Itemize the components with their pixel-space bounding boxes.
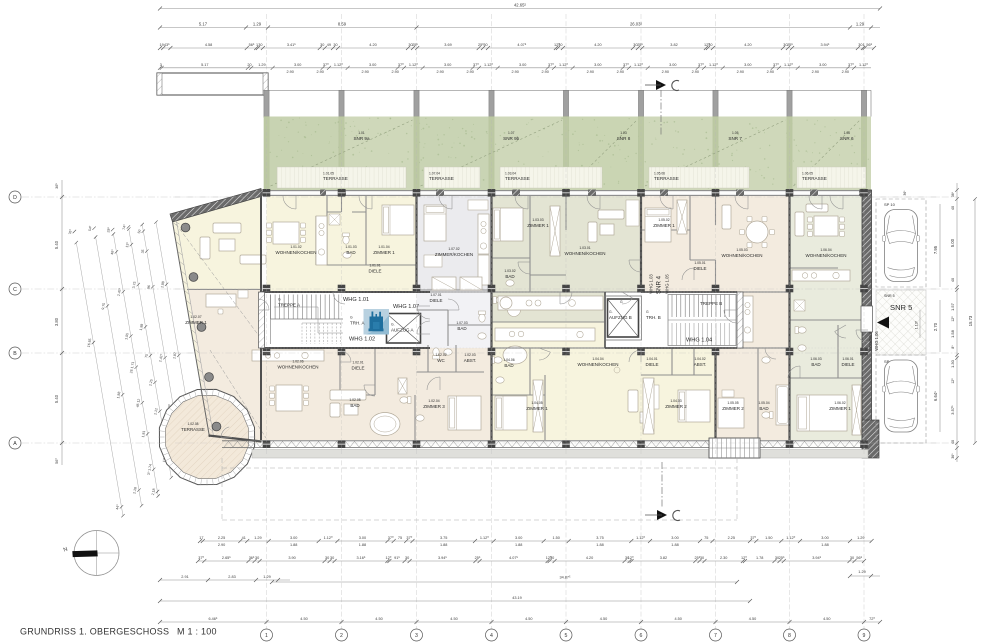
svg-text:35: 35	[141, 249, 146, 254]
svg-text:1.02.06: 1.02.06	[292, 360, 303, 364]
svg-text:75: 75	[144, 354, 149, 359]
svg-text:1.04.04: 1.04.04	[592, 357, 603, 361]
svg-text:36⁵: 36⁵	[55, 183, 59, 189]
svg-text:2.65⁵: 2.65⁵	[222, 556, 231, 560]
svg-text:1.88: 1.88	[596, 543, 603, 547]
svg-text:1.02.07: 1.02.07	[190, 315, 201, 319]
svg-text:30: 30	[483, 43, 487, 47]
svg-text:37⁰: 37⁰	[698, 63, 704, 67]
svg-text:ZIMMER 3: ZIMMER 3	[423, 404, 445, 409]
svg-text:4.50: 4.50	[450, 617, 457, 621]
svg-text:30: 30	[850, 556, 854, 560]
svg-text:SP 10: SP 10	[884, 202, 896, 207]
svg-text:1.12⁰: 1.12⁰	[334, 63, 343, 67]
svg-text:1.88: 1.88	[359, 543, 366, 547]
svg-text:SNR 9a: SNR 9a	[353, 136, 370, 141]
svg-text:ZIMMER 2: ZIMMER 2	[665, 404, 687, 409]
svg-text:3.00: 3.00	[444, 63, 451, 67]
svg-text:25⁵: 25⁵	[475, 556, 481, 560]
svg-text:12⁰: 12⁰	[628, 556, 634, 560]
svg-text:1.05.04: 1.05.04	[758, 401, 769, 405]
svg-text:WHG 1.02: WHG 1.02	[349, 337, 375, 343]
svg-text:40: 40	[951, 440, 955, 444]
svg-text:25⁵: 25⁵	[412, 43, 418, 47]
svg-text:56⁵: 56⁵	[866, 43, 872, 47]
svg-text:1.03: 1.03	[620, 131, 627, 135]
svg-text:1.01.01: 1.01.01	[369, 264, 380, 268]
svg-text:WHG 1.05: WHG 1.05	[665, 274, 670, 294]
svg-text:37⁰: 37⁰	[623, 63, 629, 67]
svg-text:1.88: 1.88	[515, 543, 522, 547]
svg-text:3.82: 3.82	[670, 43, 677, 47]
svg-text:WOHNEN/KOCHEN: WOHNEN/KOCHEN	[805, 253, 846, 258]
svg-text:5.40: 5.40	[54, 394, 59, 403]
svg-text:6.64⁵: 6.64⁵	[933, 391, 938, 401]
svg-text:1.02.01: 1.02.01	[352, 361, 363, 365]
svg-text:5.00: 5.00	[950, 238, 955, 247]
svg-text:1.12⁰: 1.12⁰	[634, 63, 643, 67]
svg-text:WOHNEN/KOCHEN: WOHNEN/KOCHEN	[275, 250, 316, 255]
svg-text:5.17: 5.17	[199, 22, 208, 27]
svg-text:DIELE: DIELE	[368, 269, 381, 274]
svg-text:50: 50	[137, 229, 142, 234]
svg-text:M 1 : 100: M 1 : 100	[177, 627, 217, 637]
svg-text:4.58: 4.58	[205, 43, 212, 47]
svg-text:ZIMMER 1: ZIMMER 1	[653, 223, 675, 228]
svg-text:30: 30	[255, 556, 259, 560]
svg-text:75: 75	[704, 536, 708, 540]
svg-text:1.29: 1.29	[857, 536, 864, 540]
svg-text:2.90: 2.90	[542, 70, 549, 74]
svg-text:1.13⁰: 1.13⁰	[915, 320, 919, 329]
svg-text:2.83: 2.83	[228, 575, 235, 579]
svg-text:30: 30	[258, 43, 262, 47]
svg-text:B: B	[13, 351, 17, 357]
svg-text:37⁰: 37⁰	[773, 63, 779, 67]
svg-text:37⁰: 37⁰	[323, 63, 329, 67]
svg-text:72⁰: 72⁰	[869, 617, 875, 621]
svg-text:1.07.03: 1.07.03	[456, 321, 467, 325]
svg-text:3.80: 3.80	[54, 317, 59, 326]
svg-text:36⁵: 36⁵	[951, 453, 955, 459]
svg-text:12⁰: 12⁰	[951, 378, 955, 384]
svg-text:1.03.01: 1.03.01	[579, 246, 590, 250]
svg-text:3.00: 3.00	[819, 63, 826, 67]
svg-text:3.00: 3.00	[369, 63, 376, 67]
svg-text:37⁰: 37⁰	[388, 536, 394, 540]
svg-text:1.88: 1.88	[440, 543, 447, 547]
svg-text:SNR 9b: SNR 9b	[503, 136, 520, 141]
svg-text:DIELE: DIELE	[645, 362, 658, 367]
svg-text:1.58: 1.58	[950, 329, 955, 338]
svg-text:BAD: BAD	[457, 326, 467, 331]
svg-text:3.57⁵: 3.57⁵	[950, 405, 955, 415]
svg-text:WOHNEN/KOCHEN: WOHNEN/KOCHEN	[564, 251, 605, 256]
svg-text:56⁵: 56⁵	[856, 556, 862, 560]
svg-text:30: 30	[325, 556, 329, 560]
svg-text:2.25: 2.25	[728, 536, 735, 540]
svg-text:49: 49	[327, 43, 331, 47]
svg-text:4.20: 4.20	[586, 556, 593, 560]
svg-text:1.29: 1.29	[858, 570, 865, 574]
svg-text:4.50: 4.50	[675, 617, 682, 621]
svg-text:37⁰: 37⁰	[848, 63, 854, 67]
svg-text:17: 17	[199, 536, 203, 540]
svg-text:ZIMMER 1: ZIMMER 1	[829, 406, 851, 411]
svg-text:SNR 6: SNR 6	[840, 136, 854, 141]
svg-text:BAD: BAD	[346, 250, 356, 255]
svg-text:ABST.: ABST.	[694, 362, 707, 367]
svg-text:3.94⁵: 3.94⁵	[438, 556, 447, 560]
svg-text:3.94⁵: 3.94⁵	[821, 43, 830, 47]
svg-text:C: C	[13, 287, 17, 293]
svg-text:TREPPE B: TREPPE B	[700, 301, 722, 306]
svg-text:3.75: 3.75	[596, 536, 603, 540]
svg-text:20: 20	[247, 63, 251, 67]
svg-text:1.29: 1.29	[856, 22, 865, 27]
svg-text:6: 6	[640, 633, 643, 639]
svg-text:1.02.02: 1.02.02	[435, 353, 446, 357]
svg-text:2.91: 2.91	[181, 575, 188, 579]
svg-text:1.07.01: 1.07.01	[430, 293, 441, 297]
svg-text:G: G	[620, 300, 623, 304]
svg-text:TERRASSE: TERRASSE	[181, 427, 205, 432]
svg-text:1.01.04: 1.01.04	[378, 245, 389, 249]
svg-text:40: 40	[951, 278, 955, 282]
svg-text:4.50: 4.50	[375, 617, 382, 621]
svg-text:1.78: 1.78	[756, 556, 763, 560]
svg-text:1.02.05: 1.02.05	[349, 398, 360, 402]
svg-text:1.12⁰: 1.12⁰	[709, 63, 718, 67]
svg-text:1.06.04: 1.06.04	[820, 248, 831, 252]
svg-text:ZIMMER 1: ZIMMER 1	[526, 406, 548, 411]
svg-text:1.29: 1.29	[253, 22, 262, 27]
svg-text:WOHNEN/KOCHEN: WOHNEN/KOCHEN	[277, 365, 318, 370]
svg-text:2.90: 2.90	[812, 70, 819, 74]
svg-text:1.05.05: 1.05.05	[727, 401, 738, 405]
svg-text:1.57: 1.57	[950, 302, 955, 311]
svg-text:8: 8	[788, 633, 791, 639]
svg-text:SNR 8: SNR 8	[617, 136, 631, 141]
svg-text:4.50: 4.50	[823, 617, 830, 621]
svg-text:ABST.: ABST.	[464, 358, 477, 363]
svg-text:25⁵: 25⁵	[779, 556, 785, 560]
svg-text:3.82: 3.82	[660, 556, 667, 560]
svg-text:3.00: 3.00	[821, 536, 828, 540]
svg-text:1.06: 1.06	[844, 131, 851, 135]
svg-text:WHG 1.01: WHG 1.01	[343, 297, 369, 303]
svg-text:30: 30	[405, 556, 409, 560]
svg-text:37⁰: 37⁰	[473, 63, 479, 67]
svg-text:1.04.03: 1.04.03	[670, 399, 681, 403]
svg-text:3.00: 3.00	[744, 63, 751, 67]
svg-text:1.12⁰: 1.12⁰	[324, 536, 333, 540]
svg-text:1.07: 1.07	[508, 131, 515, 135]
svg-text:SNR 4: SNR 4	[656, 275, 663, 294]
svg-text:BAD: BAD	[350, 403, 360, 408]
svg-text:37⁰: 37⁰	[750, 536, 756, 540]
svg-text:3.41⁵: 3.41⁵	[287, 43, 296, 47]
svg-text:BAD: BAD	[811, 362, 821, 367]
svg-text:WHG 1.06: WHG 1.06	[874, 331, 879, 351]
svg-text:2.90: 2.90	[617, 70, 624, 74]
svg-text:7: 7	[714, 633, 717, 639]
svg-text:BAD: BAD	[504, 363, 514, 368]
svg-text:30: 30	[330, 556, 334, 560]
svg-text:1.12⁰: 1.12⁰	[859, 63, 868, 67]
svg-text:30: 30	[550, 556, 554, 560]
svg-text:25⁵: 25⁵	[787, 43, 793, 47]
svg-text:1.03.02: 1.03.02	[504, 269, 515, 273]
svg-text:5.40: 5.40	[54, 240, 59, 249]
svg-text:30: 30	[708, 43, 712, 47]
svg-text:2.30: 2.30	[720, 556, 727, 560]
svg-text:1.88: 1.88	[671, 543, 678, 547]
svg-text:G: G	[646, 310, 649, 314]
svg-text:56⁵: 56⁵	[249, 43, 255, 47]
svg-text:1.29: 1.29	[254, 536, 261, 540]
svg-text:36⁵: 36⁵	[951, 191, 955, 197]
svg-text:1.01.03: 1.01.03	[345, 245, 356, 249]
svg-text:4.50: 4.50	[525, 617, 532, 621]
svg-text:4.20: 4.20	[369, 43, 376, 47]
svg-text:40: 40	[951, 206, 955, 210]
svg-text:AUFZUG A: AUFZUG A	[391, 328, 414, 333]
svg-text:30: 30	[320, 43, 324, 47]
svg-text:1.04.02: 1.04.02	[694, 357, 705, 361]
svg-text:2.90: 2.90	[218, 543, 225, 547]
svg-text:1.29: 1.29	[263, 575, 270, 579]
svg-text:4.20: 4.20	[744, 43, 751, 47]
svg-text:DIELE: DIELE	[351, 366, 364, 371]
svg-text:5.17: 5.17	[201, 63, 208, 67]
svg-text:34.87⁵: 34.87⁵	[559, 576, 571, 580]
svg-text:WHG 1.07: WHG 1.07	[393, 304, 419, 310]
svg-text:37⁰: 37⁰	[398, 63, 404, 67]
svg-text:1.02.04: 1.02.04	[428, 399, 439, 403]
svg-text:EINGANG F: EINGANG F	[869, 331, 873, 350]
svg-text:1.12⁰: 1.12⁰	[784, 63, 793, 67]
svg-text:2.25: 2.25	[218, 536, 225, 540]
svg-text:43⁵: 43⁵	[164, 43, 170, 47]
svg-text:37⁰: 37⁰	[406, 536, 412, 540]
svg-text:36⁵: 36⁵	[903, 190, 907, 196]
svg-text:1.30: 1.30	[950, 359, 955, 368]
svg-text:TERRASSE: TERRASSE	[505, 176, 530, 181]
svg-text:2.90: 2.90	[662, 70, 669, 74]
svg-text:2: 2	[340, 633, 343, 639]
svg-text:2.90: 2.90	[737, 70, 744, 74]
svg-text:DIELE: DIELE	[429, 298, 442, 303]
svg-text:3.00: 3.00	[290, 536, 297, 540]
svg-text:ZIMMER/KOCHEN: ZIMMER/KOCHEN	[435, 252, 473, 257]
svg-text:3.94⁵: 3.94⁵	[812, 556, 821, 560]
svg-text:3.00: 3.00	[519, 63, 526, 67]
svg-text:37⁰: 37⁰	[548, 63, 554, 67]
svg-text:15.73: 15.73	[968, 315, 973, 326]
svg-text:2.90: 2.90	[842, 70, 849, 74]
svg-text:BAD: BAD	[759, 406, 769, 411]
svg-text:3.16⁵: 3.16⁵	[357, 556, 366, 560]
svg-text:7.95: 7.95	[933, 245, 938, 254]
svg-text:1.02.03: 1.02.03	[464, 353, 475, 357]
svg-text:ZIMMER 1: ZIMMER 1	[185, 320, 207, 325]
svg-text:1.12⁰: 1.12⁰	[484, 63, 493, 67]
svg-text:30: 30	[333, 43, 337, 47]
svg-text:ZIMMER 1: ZIMMER 1	[527, 223, 549, 228]
svg-text:2.90: 2.90	[362, 70, 369, 74]
svg-text:2.90: 2.90	[587, 70, 594, 74]
svg-text:25⁵: 25⁵	[637, 43, 643, 47]
svg-text:36⁵: 36⁵	[249, 556, 255, 560]
svg-text:1.50: 1.50	[553, 536, 560, 540]
svg-text:30: 30	[700, 556, 704, 560]
svg-text:1.04.05: 1.04.05	[531, 401, 542, 405]
svg-text:2.90: 2.90	[437, 70, 444, 74]
svg-text:1.12⁰: 1.12⁰	[636, 536, 645, 540]
svg-text:2.90: 2.90	[317, 70, 324, 74]
svg-text:SNR 5: SNR 5	[884, 294, 895, 298]
svg-text:4.50: 4.50	[600, 617, 607, 621]
svg-text:G: G	[350, 316, 353, 320]
svg-text:2.90: 2.90	[467, 70, 474, 74]
svg-text:4.07⁵: 4.07⁵	[509, 556, 518, 560]
svg-text:WHG 1.04: WHG 1.04	[686, 338, 712, 344]
svg-text:ZIMMER 1: ZIMMER 1	[373, 250, 395, 255]
svg-text:1.88: 1.88	[821, 543, 828, 547]
svg-text:3.00: 3.00	[671, 536, 678, 540]
svg-text:1.04.01: 1.04.01	[646, 357, 657, 361]
svg-text:AUFZUG B: AUFZUG B	[609, 315, 632, 320]
svg-text:BAD: BAD	[505, 274, 515, 279]
svg-text:5: 5	[565, 633, 568, 639]
svg-text:TERRASSE: TERRASSE	[654, 176, 679, 181]
svg-text:1.12⁰: 1.12⁰	[409, 63, 418, 67]
svg-text:2.70: 2.70	[933, 322, 938, 331]
svg-text:96: 96	[147, 285, 152, 290]
svg-text:1.05.03: 1.05.03	[736, 248, 747, 252]
svg-text:8.59: 8.59	[338, 22, 347, 27]
svg-text:3.00: 3.00	[669, 63, 676, 67]
svg-text:1.12⁰: 1.12⁰	[559, 63, 568, 67]
svg-text:91⁵: 91⁵	[394, 556, 400, 560]
svg-text:3: 3	[160, 63, 162, 67]
svg-text:56⁰: 56⁰	[55, 458, 59, 464]
svg-text:SNR 5: SNR 5	[890, 303, 912, 312]
svg-text:1: 1	[265, 633, 268, 639]
svg-text:3.00: 3.00	[359, 536, 366, 540]
svg-text:1.88: 1.88	[290, 543, 297, 547]
svg-text:WC: WC	[437, 358, 445, 363]
svg-text:1.05.01: 1.05.01	[694, 261, 705, 265]
svg-text:1.04.06: 1.04.06	[503, 358, 514, 362]
svg-text:1.06.02: 1.06.02	[834, 401, 845, 405]
svg-text:TREPPE A: TREPPE A	[278, 303, 300, 308]
svg-text:75: 75	[398, 536, 402, 540]
svg-text:4.50: 4.50	[300, 617, 307, 621]
svg-text:GRUNDRISS 1. OBERGESCHOSS: GRUNDRISS 1. OBERGESCHOSS	[20, 627, 169, 637]
svg-text:12⁰: 12⁰	[741, 556, 747, 560]
svg-text:TERRASSE: TERRASSE	[323, 176, 348, 181]
svg-text:2.90: 2.90	[392, 70, 399, 74]
svg-text:2.90: 2.90	[287, 70, 294, 74]
svg-text:4.20: 4.20	[594, 43, 601, 47]
svg-text:2.90: 2.90	[767, 70, 774, 74]
svg-text:1.01.02: 1.01.02	[290, 245, 301, 249]
svg-text:TRH. B: TRH. B	[646, 315, 661, 320]
svg-text:6.46⁵: 6.46⁵	[209, 617, 218, 621]
svg-text:3.00: 3.00	[294, 63, 301, 67]
svg-text:1.07.02: 1.07.02	[448, 247, 459, 251]
svg-text:1.50: 1.50	[765, 536, 772, 540]
svg-text:1.01: 1.01	[358, 131, 365, 135]
svg-text:A: A	[13, 441, 17, 447]
svg-text:1.05: 1.05	[732, 131, 739, 135]
svg-text:WOHNEN/KOCHEN: WOHNEN/KOCHEN	[577, 362, 618, 367]
svg-text:3.90: 3.90	[288, 556, 295, 560]
svg-text:3.75: 3.75	[440, 536, 447, 540]
svg-text:8⁵: 8⁵	[951, 345, 955, 349]
svg-text:1.02.08: 1.02.08	[188, 422, 199, 426]
svg-text:1.12⁰: 1.12⁰	[480, 536, 489, 540]
svg-text:1: 1	[863, 43, 865, 47]
svg-text:37⁰: 37⁰	[198, 556, 204, 560]
svg-text:1.05.02: 1.05.02	[658, 218, 669, 222]
svg-text:ZIMMER 2: ZIMMER 2	[722, 406, 744, 411]
svg-text:SNR 7: SNR 7	[728, 136, 742, 141]
svg-text:TERRASSE: TERRASSE	[429, 176, 454, 181]
svg-text:2.90: 2.90	[692, 70, 699, 74]
svg-text:1.06.01: 1.06.01	[842, 357, 853, 361]
svg-text:3.00: 3.00	[515, 536, 522, 540]
svg-text:12⁰: 12⁰	[386, 556, 392, 560]
svg-text:30: 30	[558, 43, 562, 47]
svg-text:3.69: 3.69	[444, 43, 451, 47]
svg-text:43.19: 43.19	[512, 596, 522, 600]
svg-text:1.12⁰: 1.12⁰	[786, 536, 795, 540]
svg-text:1.29: 1.29	[258, 63, 265, 67]
svg-text:G.: G.	[391, 323, 395, 327]
svg-text:1.03.03: 1.03.03	[532, 218, 543, 222]
svg-text:DIELE: DIELE	[841, 362, 854, 367]
svg-text:3: 3	[415, 633, 418, 639]
svg-text:2.90: 2.90	[512, 70, 519, 74]
svg-text:WOHNEN/KOCHEN: WOHNEN/KOCHEN	[721, 253, 762, 258]
svg-text:D: D	[13, 195, 17, 201]
svg-text:4.50: 4.50	[749, 617, 756, 621]
svg-text:1.06.03: 1.06.03	[810, 357, 821, 361]
svg-text:TERRASSE: TERRASSE	[802, 176, 827, 181]
svg-text:WHG 1.03: WHG 1.03	[649, 274, 654, 294]
svg-text:9: 9	[863, 633, 866, 639]
svg-text:G.: G.	[609, 310, 613, 314]
svg-text:3.00: 3.00	[594, 63, 601, 67]
svg-text:41: 41	[242, 536, 246, 540]
svg-text:4.07⁵: 4.07⁵	[517, 43, 526, 47]
svg-text:TRH. A: TRH. A	[350, 321, 365, 326]
svg-text:4: 4	[490, 633, 493, 639]
svg-text:G: G	[278, 298, 281, 302]
svg-text:DIELE: DIELE	[693, 266, 706, 271]
svg-text:12⁰: 12⁰	[951, 316, 955, 322]
